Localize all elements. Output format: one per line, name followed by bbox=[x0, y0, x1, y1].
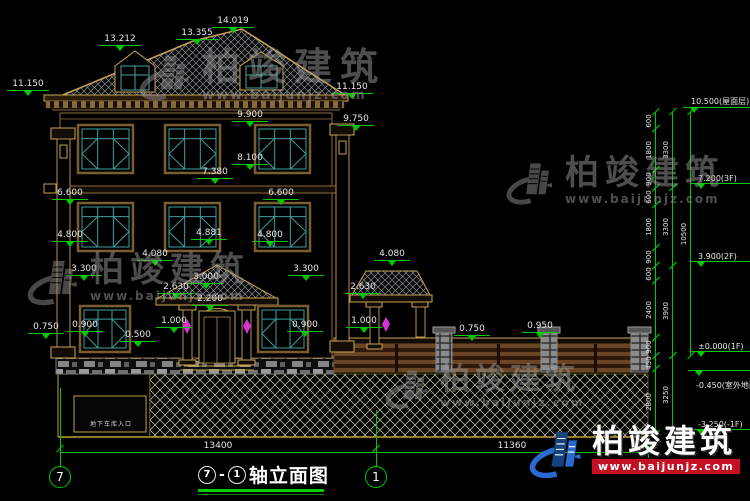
dim-label: 9.900 bbox=[232, 110, 268, 131]
dim-label: 0.900 bbox=[67, 320, 103, 341]
dim-label: 8.100 bbox=[232, 153, 268, 174]
dim-label: 1.000 bbox=[156, 316, 192, 337]
level-mark: ±0.000(1F) bbox=[690, 342, 750, 361]
vertical-dim: 3300 bbox=[672, 188, 673, 266]
drawing-title: 7 - 1 轴立面图 bbox=[198, 461, 329, 488]
dim-label: 4.800 bbox=[52, 230, 88, 251]
dim-label: 0.900 bbox=[287, 320, 323, 341]
vertical-dim: 10500 bbox=[690, 112, 691, 356]
vertical-dim: 2400 bbox=[655, 281, 656, 338]
dim-label: 0.500 bbox=[120, 330, 156, 351]
brand-company: 柏竣建筑 bbox=[592, 425, 740, 457]
axis-line-1 bbox=[376, 410, 377, 467]
dim-label: 0.750 bbox=[28, 322, 64, 343]
dim-label: 11.150 bbox=[7, 79, 49, 100]
dim-label: 11.150 bbox=[331, 82, 373, 103]
dim-label: 6.600 bbox=[263, 188, 299, 209]
axis-bubble-7: 7 bbox=[49, 466, 71, 488]
level-mark: 3.900(2F) bbox=[690, 252, 750, 271]
title-separator: - bbox=[219, 467, 225, 483]
dim-label: 2.200 bbox=[192, 294, 228, 315]
dim-label: 13.212 bbox=[99, 34, 141, 55]
vertical-dim: 1800 bbox=[655, 205, 656, 248]
dim-label: 4.080 bbox=[374, 249, 410, 270]
brand-logo: 柏竣建筑 www.baijunjz.com bbox=[528, 425, 740, 481]
dormer-left bbox=[115, 51, 155, 92]
dim-label: 4.080 bbox=[137, 249, 173, 270]
bottom-dim: 13400 bbox=[60, 452, 376, 453]
dim-label: 0.750 bbox=[454, 324, 490, 345]
title-underline bbox=[198, 489, 324, 492]
dim-label: 0.950 bbox=[522, 321, 558, 342]
dim-label: 13.355 bbox=[176, 28, 218, 49]
dim-label: 3.300 bbox=[66, 264, 102, 285]
dim-label: 2.630 bbox=[158, 282, 194, 303]
level-mark: 7.200(3F) bbox=[690, 174, 750, 193]
brand-url: www.baijunjz.com bbox=[592, 459, 740, 474]
title-text: 轴立面图 bbox=[249, 461, 329, 488]
vertical-dim: 3300 bbox=[672, 112, 673, 188]
dim-label: 14.019 bbox=[212, 16, 254, 37]
dim-label: 4.800 bbox=[252, 230, 288, 251]
garage-entrance-label: 地下车库入口 bbox=[76, 419, 146, 428]
dim-label: 7.380 bbox=[197, 167, 233, 188]
title-axis-end: 1 bbox=[228, 466, 246, 484]
dim-label: 3.300 bbox=[288, 264, 324, 285]
level-mark: 10.500(屋面层) bbox=[683, 96, 750, 117]
dim-label: 1.000 bbox=[346, 316, 382, 337]
dim-label: 4.881 bbox=[191, 228, 227, 249]
dim-label: 6.600 bbox=[52, 188, 88, 209]
vertical-dim: 3900 bbox=[672, 266, 673, 356]
baijun-logo-color-icon bbox=[528, 425, 586, 481]
title-underline-thin bbox=[198, 494, 324, 495]
cad-elevation-screenshot: 14.01913.35513.21211.15011.1509.9009.750… bbox=[0, 0, 750, 501]
axis-line-7 bbox=[60, 388, 61, 467]
vertical-dim: 1800 bbox=[655, 129, 656, 170]
dim-label: 9.750 bbox=[338, 114, 374, 135]
level-mark: -0.450(室外地面) bbox=[688, 370, 750, 391]
dim-label: 2.630 bbox=[345, 282, 381, 303]
title-axis-start: 7 bbox=[198, 466, 216, 484]
axis-bubble-1: 1 bbox=[365, 466, 387, 488]
